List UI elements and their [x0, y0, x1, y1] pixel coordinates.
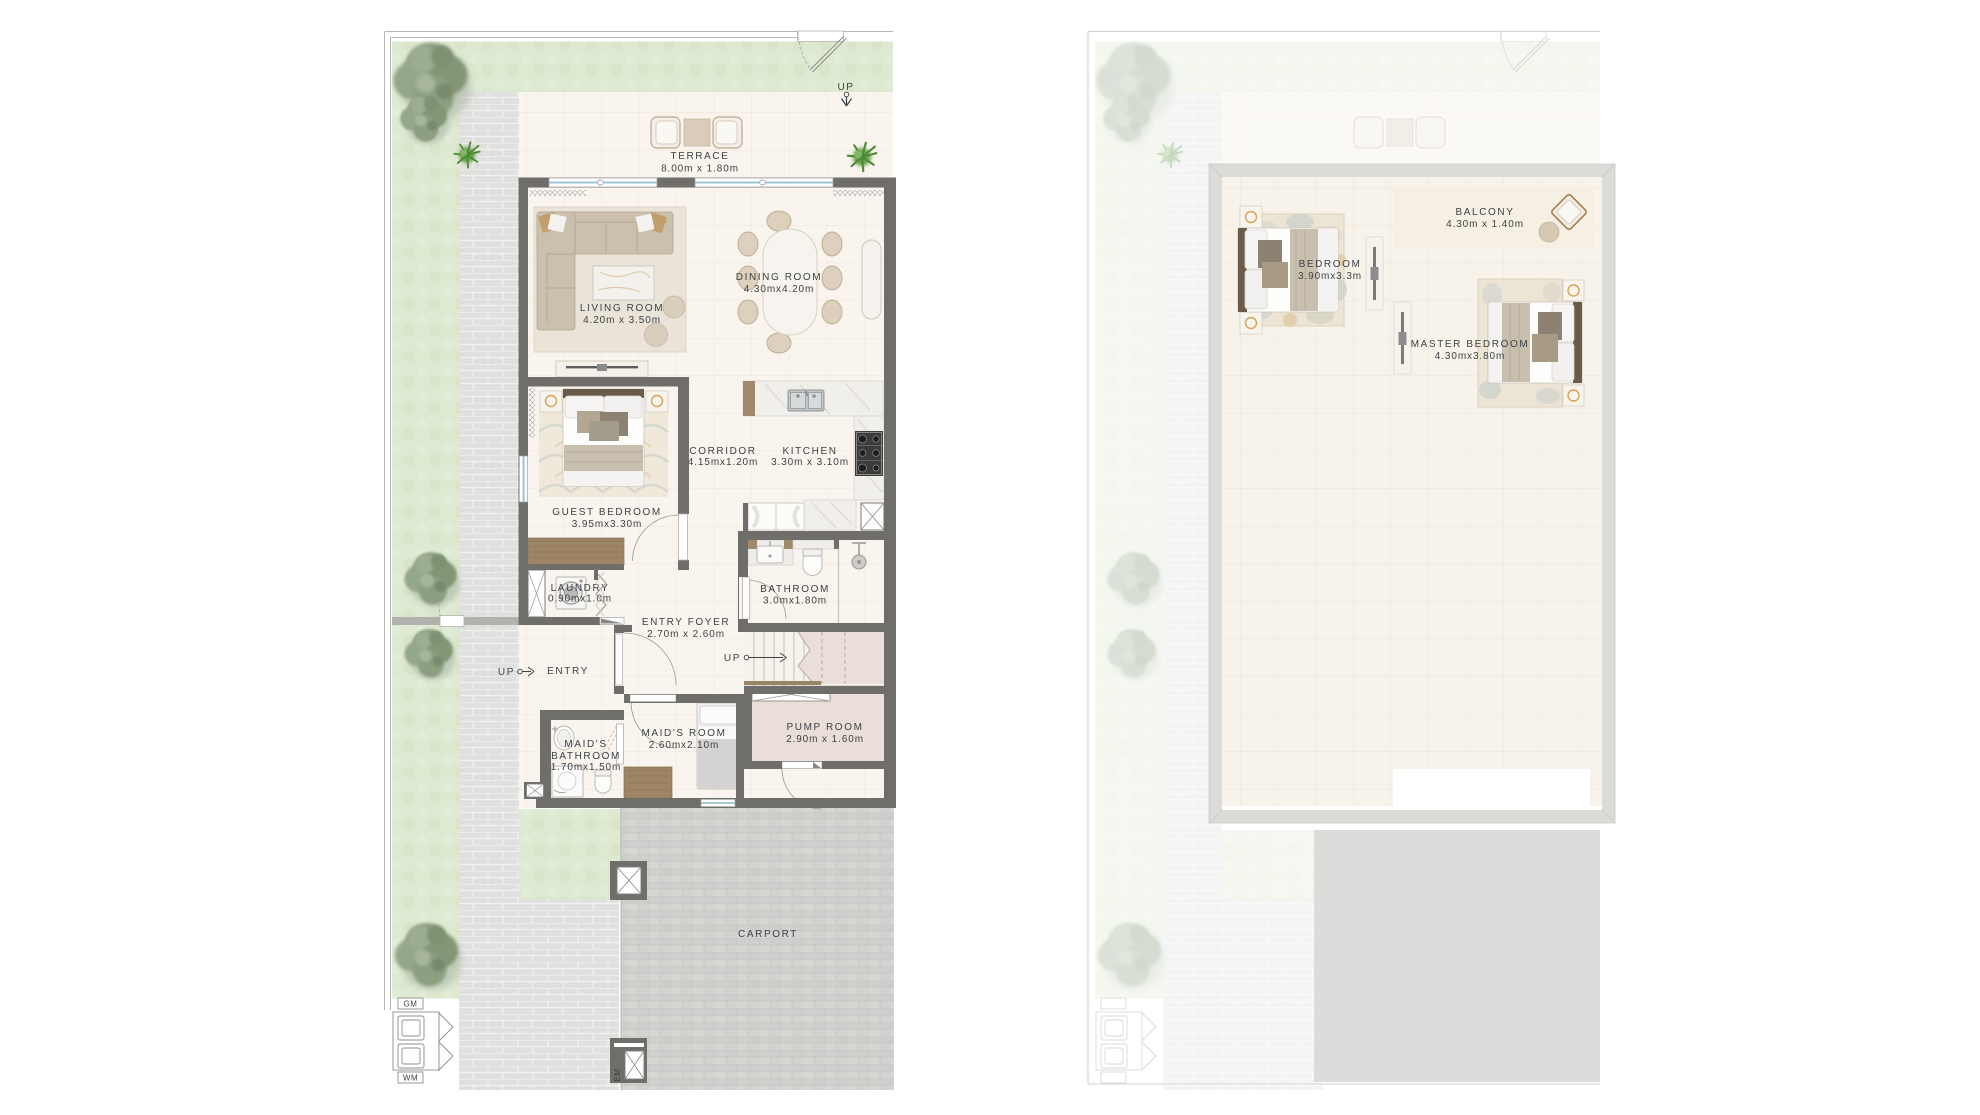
svg-text:3.95mx3.30m: 3.95mx3.30m: [572, 519, 643, 530]
svg-text:4.15mx1.20m: 4.15mx1.20m: [688, 457, 759, 468]
svg-text:DINING ROOM: DINING ROOM: [736, 272, 823, 283]
svg-text:UP: UP: [498, 667, 515, 678]
svg-text:KITCHEN: KITCHEN: [782, 446, 837, 457]
svg-text:1.70mx1.50m: 1.70mx1.50m: [551, 762, 622, 773]
svg-text:UP: UP: [724, 653, 741, 664]
svg-text:WM: WM: [403, 1074, 418, 1083]
svg-text:BEDROOM: BEDROOM: [1299, 259, 1362, 270]
svg-text:PUMP ROOM: PUMP ROOM: [787, 722, 864, 733]
svg-text:4.30m x 1.40m: 4.30m x 1.40m: [1446, 219, 1524, 230]
svg-text:8.00m x 1.80m: 8.00m x 1.80m: [661, 164, 739, 175]
svg-text:ENTRY: ENTRY: [547, 666, 589, 677]
svg-text:2.70m x 2.60m: 2.70m x 2.60m: [647, 629, 725, 640]
svg-text:GM: GM: [404, 1000, 418, 1009]
svg-text:BATHROOM: BATHROOM: [760, 584, 830, 595]
svg-text:EM: EM: [613, 1069, 622, 1082]
svg-text:GUEST BEDROOM: GUEST BEDROOM: [552, 507, 662, 518]
svg-text:BATHROOM: BATHROOM: [551, 751, 621, 762]
svg-text:TERRACE: TERRACE: [671, 151, 730, 162]
svg-text:3.90mx3.3m: 3.90mx3.3m: [1298, 271, 1362, 282]
svg-text:3.30m x 3.10m: 3.30m x 3.10m: [771, 457, 849, 468]
svg-text:4.30mx4.20m: 4.30mx4.20m: [744, 284, 815, 295]
svg-text:CARPORT: CARPORT: [738, 929, 798, 940]
svg-text:4.30mx3.80m: 4.30mx3.80m: [1435, 351, 1506, 362]
svg-text:0.90mx1.0m: 0.90mx1.0m: [548, 594, 612, 605]
svg-text:MAID'S: MAID'S: [564, 739, 607, 750]
svg-text:4.20m x 3.50m: 4.20m x 3.50m: [583, 315, 661, 326]
svg-text:MAID'S ROOM: MAID'S ROOM: [641, 728, 726, 739]
svg-text:MASTER BEDROOM: MASTER BEDROOM: [1411, 339, 1530, 350]
svg-text:UP: UP: [837, 82, 854, 93]
svg-text:2.90m x 1.60m: 2.90m x 1.60m: [786, 734, 864, 745]
svg-text:BALCONY: BALCONY: [1456, 207, 1515, 218]
svg-text:3.0mx1.80m: 3.0mx1.80m: [763, 596, 827, 607]
svg-text:2.60mx2.10m: 2.60mx2.10m: [649, 740, 720, 751]
svg-text:LIVING ROOM: LIVING ROOM: [580, 303, 664, 314]
svg-text:CORRIDOR: CORRIDOR: [689, 446, 756, 457]
svg-text:ENTRY FOYER: ENTRY FOYER: [642, 617, 730, 628]
